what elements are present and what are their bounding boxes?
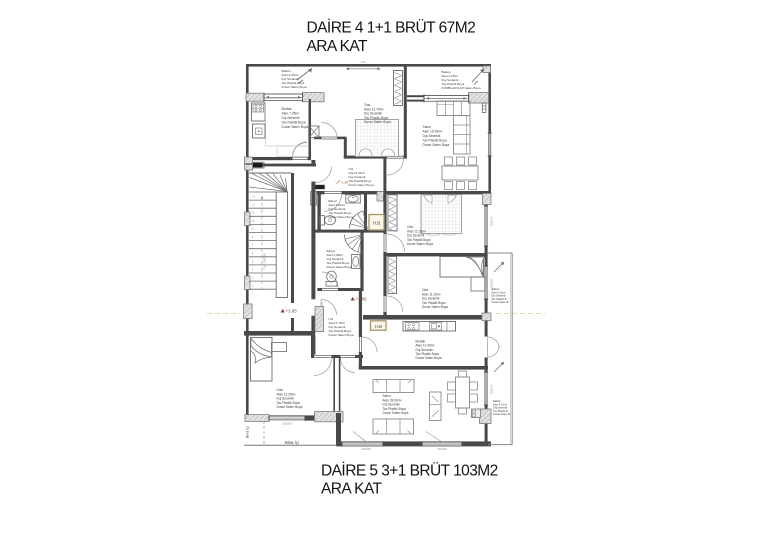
svg-text:H.B: H.B bbox=[375, 324, 382, 329]
svg-text:ARA KAT: ARA KAT bbox=[307, 38, 369, 55]
svg-text:H.B: H.B bbox=[373, 221, 381, 226]
svg-text:4.05: 4.05 bbox=[360, 60, 366, 64]
svg-text:ARA KAT: ARA KAT bbox=[321, 480, 383, 497]
svg-text:Bina İçi: Bina İçi bbox=[245, 426, 250, 438]
svg-text:+3.65: +3.65 bbox=[286, 309, 298, 314]
svg-text:2.30: 2.30 bbox=[342, 181, 349, 185]
svg-text:DAİRE 5 3+1 BRÜT 103M2: DAİRE 5 3+1 BRÜT 103M2 bbox=[321, 461, 498, 479]
svg-text:160/220: 160/220 bbox=[282, 422, 292, 426]
svg-text:160/120: 160/120 bbox=[490, 216, 494, 226]
svg-text:DAİRE 4 1+1 BRÜT 67M2: DAİRE 4 1+1 BRÜT 67M2 bbox=[307, 19, 476, 37]
svg-text:140/220: 140/220 bbox=[437, 447, 447, 451]
svg-text:Bina İçi: Bina İçi bbox=[285, 440, 299, 445]
svg-text:229: 229 bbox=[321, 301, 324, 306]
svg-text:160/120: 160/120 bbox=[490, 384, 494, 394]
svg-text:+3.65: +3.65 bbox=[356, 297, 368, 302]
svg-text:140/220: 140/220 bbox=[361, 447, 371, 451]
svg-text:160/120: 160/120 bbox=[490, 278, 494, 288]
svg-text:17x0.176/0.28: 17x0.176/0.28 bbox=[263, 253, 267, 270]
